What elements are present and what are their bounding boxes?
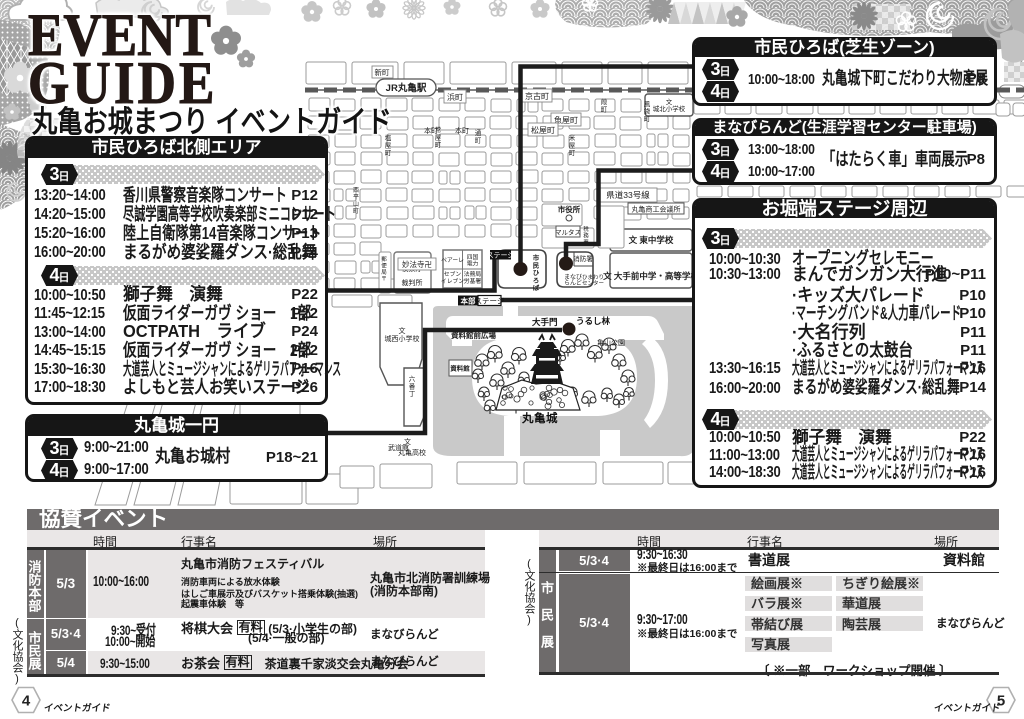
- svg-text:文: 文: [399, 326, 406, 335]
- svg-text:町: 町: [601, 106, 608, 114]
- svg-text:城北小学校: 城北小学校: [653, 104, 686, 113]
- svg-text:西: 西: [353, 187, 359, 194]
- svg-text:センター: センター: [582, 279, 604, 287]
- svg-text:文: 文: [404, 437, 411, 446]
- svg-text:本町: 本町: [455, 126, 469, 135]
- svg-text:ペアーレ: ペアーレ: [441, 257, 464, 264]
- svg-text:文 東中学校: 文 東中学校: [629, 235, 674, 245]
- svg-text:町: 町: [435, 141, 442, 149]
- svg-text:税: 税: [583, 225, 589, 233]
- svg-text:町: 町: [569, 149, 576, 157]
- svg-text:丸亀高校: 丸亀高校: [398, 448, 426, 457]
- svg-text:ば: ば: [533, 283, 540, 292]
- svg-text:イレブン: イレブン: [441, 277, 464, 285]
- svg-text:郵: 郵: [381, 255, 387, 263]
- svg-text:民: 民: [533, 262, 540, 270]
- svg-text:電力: 電力: [467, 260, 479, 268]
- svg-text:局: 局: [381, 269, 387, 276]
- svg-text:平: 平: [353, 194, 359, 201]
- svg-text:町: 町: [385, 149, 392, 157]
- svg-text:ひ: ひ: [533, 269, 540, 277]
- svg-text:新町: 新町: [375, 67, 390, 77]
- svg-text:浜町: 浜町: [447, 92, 463, 102]
- svg-text:市役所: 市役所: [558, 204, 581, 214]
- svg-text:松屋町: 松屋町: [531, 125, 555, 135]
- svg-text:米: 米: [569, 133, 576, 142]
- svg-text:四国: 四国: [467, 254, 479, 261]
- svg-text:風: 風: [644, 100, 651, 108]
- svg-text:県道33号線: 県道33号線: [606, 190, 650, 200]
- svg-text:城西小学校: 城西小学校: [385, 334, 420, 343]
- svg-text:文: 文: [666, 97, 673, 106]
- svg-text:丸亀城: 丸亀城: [521, 411, 558, 425]
- svg-text:屋: 屋: [569, 142, 576, 150]
- svg-text:まなび: まなび: [564, 273, 582, 281]
- svg-text:裁判所: 裁判所: [402, 278, 423, 287]
- svg-text:マルタス: マルタス: [555, 228, 581, 237]
- svg-text:4: 4: [22, 693, 31, 710]
- svg-text:葭: 葭: [601, 97, 608, 106]
- svg-text:妙法寺卍: 妙法寺卍: [402, 259, 432, 269]
- svg-text:京古町: 京古町: [525, 91, 549, 101]
- svg-text:消防署: 消防署: [573, 254, 593, 263]
- svg-text:〒: 〒: [381, 276, 387, 283]
- svg-text:ひまわり: ひまわり: [582, 274, 604, 281]
- svg-text:亀山公園: 亀山公園: [597, 338, 625, 347]
- svg-text:市: 市: [533, 253, 540, 262]
- svg-text:屋: 屋: [385, 142, 392, 150]
- svg-text:大手門: 大手門: [532, 317, 558, 327]
- svg-text:文 大手前中学・高等学校: 文 大手前中学・高等学校: [603, 271, 699, 281]
- svg-text:袋: 袋: [644, 107, 651, 116]
- svg-text:本部: 本部: [460, 296, 476, 306]
- svg-text:便: 便: [381, 262, 387, 270]
- svg-text:ステージ: ステージ: [475, 297, 505, 306]
- svg-text:番: 番: [409, 383, 416, 391]
- svg-text:法務局: 法務局: [464, 270, 482, 278]
- svg-text:丸亀商工会議所: 丸亀商工会議所: [632, 205, 681, 214]
- svg-text:労基署: 労基署: [464, 277, 482, 285]
- svg-text:町: 町: [475, 137, 482, 145]
- svg-text:ろ: ろ: [533, 277, 540, 285]
- svg-text:務: 務: [583, 232, 589, 240]
- svg-text:通: 通: [475, 128, 482, 137]
- svg-text:セブン: セブン: [444, 270, 462, 278]
- svg-text:丁: 丁: [409, 390, 416, 398]
- svg-text:ステージ: ステージ: [487, 252, 515, 260]
- svg-text:JR丸亀駅: JR丸亀駅: [386, 82, 427, 94]
- svg-text:本町: 本町: [424, 126, 438, 135]
- svg-text:うるし林: うるし林: [576, 316, 611, 326]
- svg-text:町: 町: [644, 115, 651, 123]
- svg-text:らんど: らんど: [564, 279, 582, 287]
